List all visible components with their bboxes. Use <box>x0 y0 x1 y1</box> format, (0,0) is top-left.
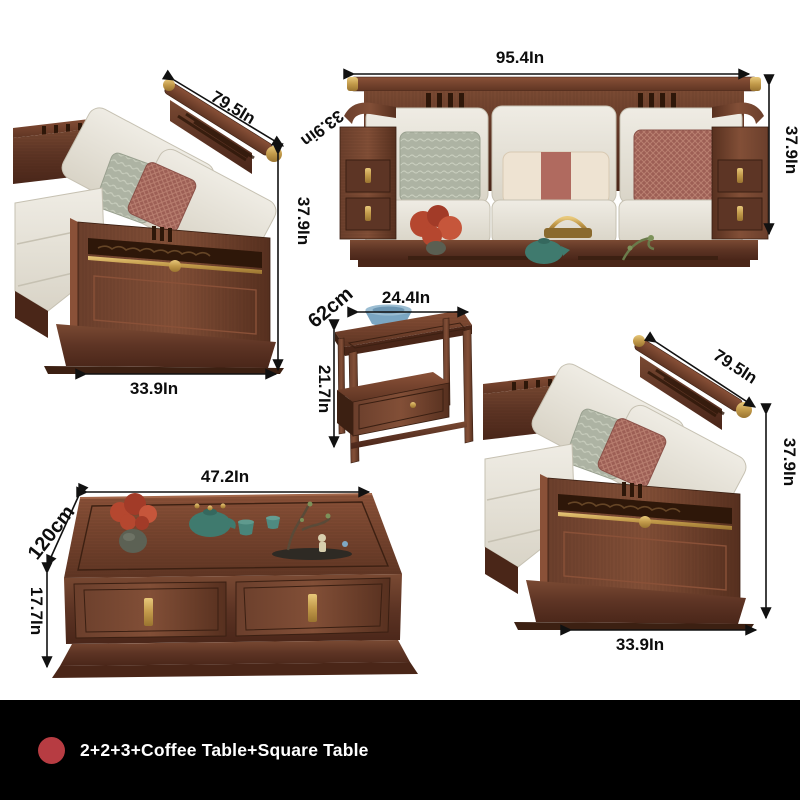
bullet-icon <box>38 737 65 764</box>
stripe-pillow <box>503 152 609 204</box>
product-dimension-sheet: 79.5In 37.9In 33.9In 95.4In 33.9in 37.9I… <box>0 0 800 800</box>
dim-sofa3-height: 37.9In <box>781 126 800 174</box>
drawer-pull <box>144 598 153 626</box>
dim-loveseat-b-width: 33.9In <box>616 635 664 655</box>
top-rail <box>347 77 761 91</box>
loveseat-angled-photo <box>8 76 300 380</box>
three-seater-sofa-photo <box>338 72 770 272</box>
coffee-table-photo <box>40 490 422 682</box>
front-side-panel <box>540 474 740 601</box>
dim-loveseat-a-width: 33.9In <box>130 379 178 399</box>
dim-table-width: 24.4In <box>382 288 430 308</box>
square-table-photo <box>325 293 481 475</box>
red-pillow <box>634 130 716 204</box>
dim-coffee-height: 17.7In <box>26 587 46 635</box>
drawer-pull <box>308 594 317 622</box>
dim-loveseat-b-height: 37.9In <box>779 438 799 486</box>
dim-sofa3-width: 95.4In <box>496 48 544 68</box>
drawer-apron <box>64 574 402 644</box>
green-pillow <box>400 132 480 202</box>
dim-coffee-width: 47.2In <box>201 467 249 487</box>
caption-bar: 2+2+3+Coffee Table+Square Table <box>0 700 800 800</box>
dim-table-height-in: 21.7In <box>314 365 334 413</box>
loveseat-angled-photo-2 <box>478 332 770 636</box>
front-side-panel <box>70 218 270 345</box>
dim-loveseat-a-height: 37.9In <box>293 197 313 245</box>
base <box>52 640 418 678</box>
caption-text: 2+2+3+Coffee Table+Square Table <box>80 740 369 761</box>
